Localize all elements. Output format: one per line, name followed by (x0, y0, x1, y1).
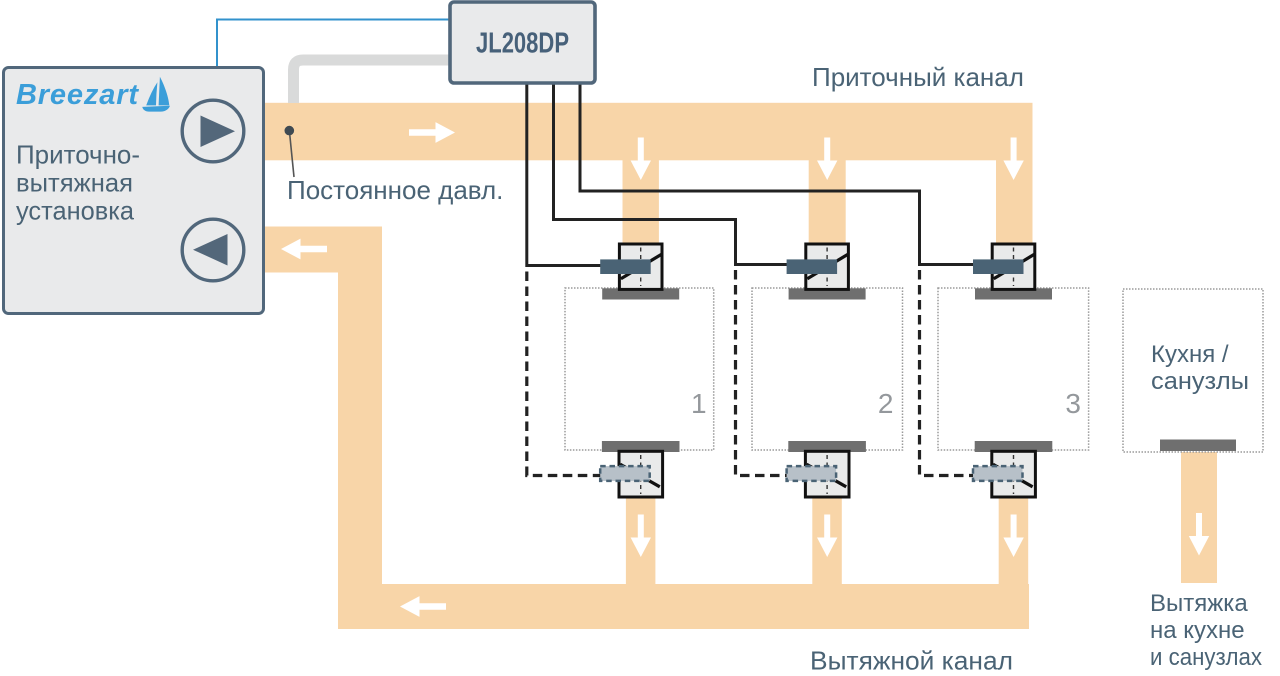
svg-text:Кухня /: Кухня / (1151, 341, 1229, 368)
svg-text:2: 2 (878, 388, 894, 419)
svg-text:JL208DP: JL208DP (476, 28, 569, 60)
svg-text:3: 3 (1065, 388, 1081, 419)
svg-text:Постоянное давл.: Постоянное давл. (287, 175, 503, 205)
svg-text:вытяжная: вытяжная (16, 168, 133, 198)
svg-text:и санузлах: и санузлах (1150, 644, 1262, 671)
svg-text:Breezart: Breezart (16, 79, 139, 111)
svg-text:Приточно-: Приточно- (16, 140, 140, 170)
svg-text:Вытяжка: Вытяжка (1150, 590, 1248, 617)
svg-text:Вытяжной канал: Вытяжной канал (810, 646, 1013, 676)
svg-text:установка: установка (16, 196, 135, 226)
svg-text:на кухне: на кухне (1150, 617, 1245, 644)
svg-text:Приточный канал: Приточный канал (812, 62, 1024, 92)
svg-text:1: 1 (691, 388, 707, 419)
svg-text:санузлы: санузлы (1151, 368, 1249, 395)
